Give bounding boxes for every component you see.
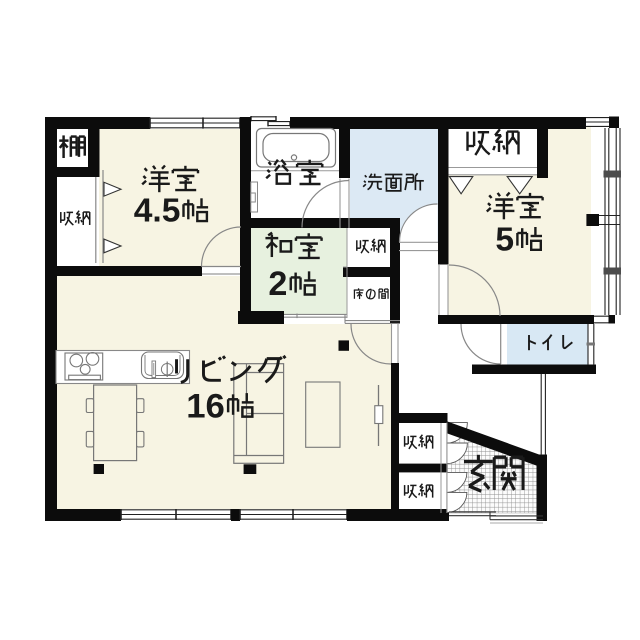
svg-text:5: 5 [495, 221, 514, 258]
svg-text:2: 2 [268, 265, 287, 303]
svg-text:4.5: 4.5 [134, 193, 181, 230]
svg-text:16: 16 [186, 387, 225, 425]
